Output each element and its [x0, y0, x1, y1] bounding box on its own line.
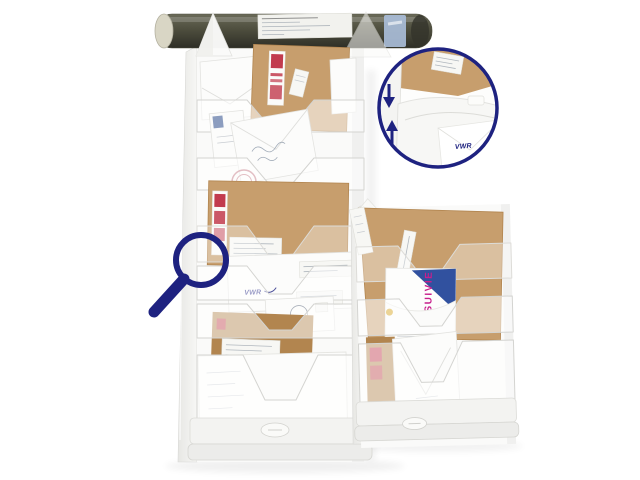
- tube-shipping-label: [258, 13, 352, 39]
- tube-blue-band: [384, 15, 406, 47]
- detail-vwr-logo: VWR: [455, 143, 472, 151]
- base-front-band: [356, 398, 517, 426]
- postage-stamp: [214, 194, 225, 207]
- postage-stamp: [270, 85, 282, 99]
- base-lower-band: [188, 444, 372, 460]
- poster-tube: [155, 13, 432, 48]
- left-rack-base: [188, 418, 372, 460]
- postage-stamp: [271, 54, 283, 68]
- detail-thumb-tab: [468, 96, 484, 105]
- express-label-text: SUIVIE: [423, 271, 434, 313]
- tube-end-shade: [411, 15, 429, 47]
- right-rack: SUIVIE: [347, 195, 519, 448]
- tube-band-sticker: [388, 22, 402, 24]
- right-rack-base: [354, 398, 519, 441]
- postage-stamp: [214, 211, 225, 224]
- detail-zoom-circle: VWR: [377, 47, 499, 169]
- stamp-bar: [270, 79, 282, 82]
- photo-canvas: VWR: [0, 0, 640, 480]
- product-photo[interactable]: VWR: [0, 0, 640, 480]
- stamp-bar: [270, 73, 282, 76]
- tube-end-cap: [155, 14, 173, 48]
- magnifier-handle: [154, 279, 184, 312]
- postage-stamp: [212, 115, 223, 128]
